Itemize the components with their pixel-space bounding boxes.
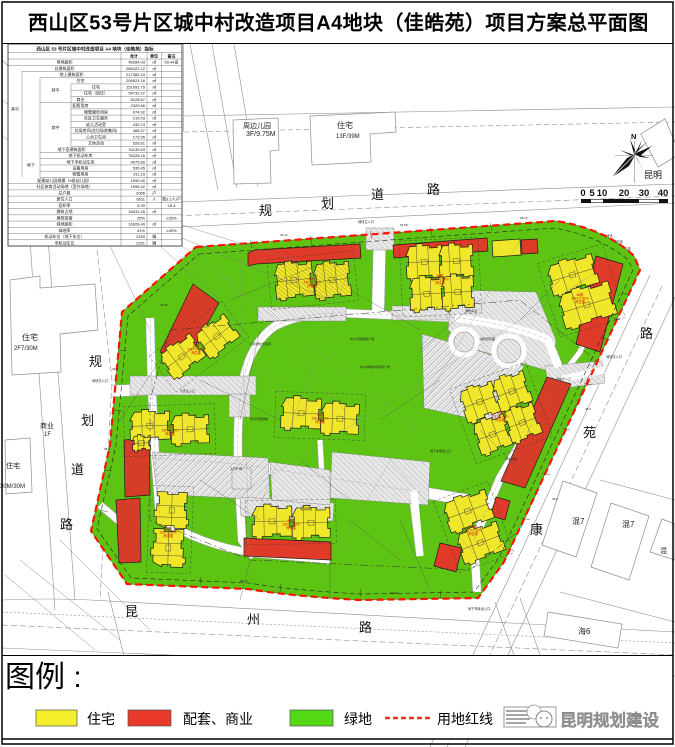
svg-text:0: 0 (580, 188, 585, 199)
svg-text:388.37: 388.37 (133, 128, 146, 133)
svg-text:其中: 其中 (52, 87, 60, 93)
svg-text:地下非机动车库: 地下非机动车库 (67, 158, 95, 164)
svg-text:绿地: 绿地 (344, 711, 372, 727)
svg-text:38.23: 38.23 (520, 216, 528, 220)
svg-text:建筑密度: 建筑密度 (57, 214, 73, 220)
svg-text:昆明: 昆明 (644, 170, 662, 180)
svg-text:2159: 2159 (136, 234, 146, 239)
svg-text:居住人口: 居住人口 (57, 196, 73, 202)
svg-text:24.35: 24.35 (160, 303, 168, 307)
svg-text:住宅: 住宅 (92, 84, 100, 90)
svg-text:商住楼: 商住楼 (191, 350, 201, 355)
svg-text:备注: 备注 (167, 53, 176, 59)
svg-text:公共卫生间: 公共卫生间 (86, 133, 106, 139)
svg-text:绿地率: 绿地率 (59, 227, 71, 233)
svg-text:13F/39M: 13F/39M (336, 134, 360, 140)
svg-text:36.8: 36.8 (552, 497, 558, 501)
svg-text:住宅: 住宅 (6, 461, 20, 470)
svg-text:商住楼: 商住楼 (575, 299, 585, 304)
svg-text:151992.75: 151992.75 (126, 85, 146, 90)
svg-text:辆: 辆 (152, 233, 156, 239)
svg-text:路: 路 (640, 326, 653, 341)
svg-text:地下车库出入口: 地下车库出入口 (430, 448, 451, 453)
svg-text:路: 路 (427, 182, 440, 197)
svg-text:㎡: ㎡ (152, 140, 156, 146)
svg-text:16928.49: 16928.49 (128, 222, 145, 227)
svg-text:地上建筑面积: 地上建筑面积 (60, 71, 84, 77)
svg-text:其中: 其中 (11, 105, 19, 111)
svg-text:住宅: 住宅 (87, 711, 115, 727)
svg-text:住宅: 住宅 (337, 120, 353, 130)
svg-text:㎡: ㎡ (152, 115, 156, 121)
svg-text:㎡: ㎡ (152, 133, 156, 139)
svg-text:8128.67: 8128.67 (131, 97, 146, 102)
svg-text:1996.42: 1996.42 (131, 184, 146, 189)
svg-text:商住楼: 商住楼 (315, 419, 325, 424)
svg-text:西山区 53 号片区城中村改造项目 A4 地块（佳皓苑）指标: 西山区 53 号片区城中村改造项目 A4 地块（佳皓苑）指标 (36, 45, 154, 52)
svg-text:76226.16: 76226.16 (128, 153, 145, 158)
svg-text:用地红线: 用地红线 (437, 711, 493, 727)
svg-text:单位: 单位 (150, 53, 158, 59)
svg-text:路: 路 (60, 517, 73, 532)
svg-text:混7: 混7 (572, 517, 585, 526)
svg-text:配建幼儿园规模（9班幼儿园）: 配建幼儿园规模（9班幼儿园） (37, 177, 91, 183)
svg-text:535.45: 535.45 (133, 166, 146, 171)
svg-text:N: N (631, 132, 636, 141)
svg-text:混7: 混7 (622, 520, 635, 529)
svg-text:容积率: 容积率 (59, 202, 71, 208)
svg-text:消防车道: 消防车道 (465, 308, 477, 313)
svg-text:人: 人 (152, 197, 156, 202)
svg-text:商住楼: 商住楼 (468, 531, 478, 536)
svg-text:㎡: ㎡ (152, 183, 156, 189)
svg-text:机动车位（地下车位）: 机动车位（地下车位） (45, 233, 85, 239)
svg-text:62.35: 62.35 (390, 591, 398, 595)
svg-text:总户数: 总户数 (59, 189, 71, 195)
svg-text:地下机动车库: 地下机动车库 (69, 152, 93, 158)
svg-text:㎡: ㎡ (152, 59, 156, 65)
svg-text:划: 划 (81, 413, 94, 428)
svg-text:≤5.4: ≤5.4 (168, 203, 177, 208)
svg-text:16031.45: 16031.45 (128, 209, 145, 214)
svg-text:㎡: ㎡ (152, 177, 156, 183)
svg-text:63.58: 63.58 (400, 223, 408, 227)
svg-text:设备用房: 设备用房 (73, 165, 89, 171)
svg-text:商住楼: 商住楼 (307, 283, 317, 288)
svg-text:按3.2人/户: 按3.2人/户 (162, 196, 181, 202)
svg-text:商住楼: 商住楼 (163, 533, 173, 538)
svg-text:混: 混 (660, 546, 667, 555)
svg-text:㎡: ㎡ (152, 152, 156, 158)
svg-text:㎡: ㎡ (152, 127, 156, 133)
svg-text:5: 5 (589, 188, 595, 199)
svg-text:商住楼: 商住楼 (495, 417, 505, 422)
svg-text:总建筑面积: 总建筑面积 (55, 65, 75, 71)
svg-text:㎡: ㎡ (152, 65, 156, 71)
svg-text:㎡: ㎡ (152, 77, 156, 83)
svg-text:46284.03: 46284.03 (128, 60, 145, 65)
svg-text:㎡: ㎡ (152, 121, 156, 127)
svg-text:30M/30M: 30M/30M (0, 484, 25, 490)
svg-text:小区绿化景观带: 小区绿化景观带 (250, 341, 271, 346)
svg-text:6611: 6611 (136, 197, 145, 202)
svg-text:商住楼: 商住楼 (286, 525, 296, 530)
svg-text:路: 路 (359, 620, 372, 635)
svg-text:3F/9.75M: 3F/9.75M (246, 131, 276, 138)
svg-text:㎡: ㎡ (152, 171, 156, 177)
svg-text:物管用房: 物管用房 (73, 171, 89, 177)
svg-text:辆: 辆 (152, 239, 156, 245)
svg-text:215.03: 215.03 (133, 116, 146, 121)
svg-text:其中: 其中 (52, 124, 60, 130)
svg-text:中心景观绿地广场: 中心景观绿地广场 (350, 336, 374, 341)
svg-text:地块主入口: 地块主入口 (358, 219, 374, 224)
svg-text:户: 户 (152, 189, 156, 195)
svg-text:10: 10 (597, 188, 608, 199)
svg-text:合计: 合计 (130, 53, 138, 59)
svg-text:住宅（回迁）: 住宅（回迁） (84, 90, 108, 96)
svg-text:52.6: 52.6 (614, 317, 620, 321)
svg-text:㎡: ㎡ (152, 71, 156, 77)
svg-text:规: 规 (259, 203, 272, 218)
svg-text:45.12: 45.12 (280, 233, 288, 237)
svg-text:垃圾房间(含垃圾收集间): 垃圾房间(含垃圾收集间) (75, 127, 118, 133)
svg-text:文体活动: 文体活动 (88, 140, 104, 146)
svg-text:人行广场: 人行广场 (230, 466, 242, 471)
svg-text:图例 :: 图例 : (5, 661, 82, 694)
svg-text:20: 20 (619, 188, 630, 199)
svg-text:幼儿活动室: 幼儿活动室 (86, 121, 106, 127)
svg-text:2329.66: 2329.66 (131, 103, 146, 108)
svg-text:地块次入口: 地块次入口 (556, 376, 571, 381)
svg-text:206624.16: 206624.16 (126, 78, 146, 83)
svg-text:311.23: 311.23 (133, 172, 146, 177)
svg-text:划: 划 (321, 196, 334, 211)
svg-text:25%: 25% (137, 215, 145, 220)
svg-text:中心绿地休闲活动广场: 中心绿地休闲活动广场 (360, 364, 390, 369)
svg-text:建筑占地: 建筑占地 (57, 208, 73, 214)
svg-text:2251: 2251 (136, 240, 146, 245)
svg-text:㎡: ㎡ (152, 90, 156, 96)
svg-text:州: 州 (247, 612, 260, 627)
svg-text:宅间绿地: 宅间绿地 (300, 506, 312, 511)
svg-text:道: 道 (71, 462, 84, 477)
svg-text:㎡: ㎡ (152, 221, 156, 227)
svg-text:㎡: ㎡ (152, 102, 156, 108)
svg-text:绿地面积: 绿地面积 (57, 221, 73, 227)
svg-text:2066: 2066 (136, 190, 146, 195)
svg-text:西山区53号片区城中村改造项目A4地块（佳皓苑）项目方案总平: 西山区53号片区城中村改造项目A4地块（佳皓苑）项目方案总平面图 (28, 11, 649, 35)
svg-text:㎡: ㎡ (152, 158, 156, 164)
svg-text:地下: 地下 (27, 161, 35, 167)
svg-text:配套、商业: 配套、商业 (183, 711, 253, 727)
svg-text:商业: 商业 (77, 96, 85, 102)
svg-text:地下室建筑面积: 地下室建筑面积 (58, 146, 86, 152)
svg-text:康: 康 (530, 522, 543, 537)
svg-text:㎡: ㎡ (152, 146, 156, 152)
svg-text:≤25%: ≤25% (166, 215, 177, 220)
svg-text:㎡: ㎡ (152, 165, 156, 171)
svg-text:周边儿园: 周边儿园 (243, 121, 271, 130)
svg-text:286322.12: 286322.12 (126, 66, 146, 71)
svg-text:217382.24: 217382.24 (126, 72, 146, 77)
svg-text:≥40%: ≥40% (166, 228, 177, 233)
svg-text:社区体育活动场地（室外场地）: 社区体育活动场地（室外场地） (37, 183, 93, 189)
svg-text:㎡: ㎡ (152, 208, 156, 214)
svg-text:地块次入口: 地块次入口 (606, 354, 622, 359)
svg-text:商业: 商业 (40, 421, 54, 430)
svg-text:非机动车位: 非机动车位 (55, 239, 75, 245)
svg-text:42.6: 42.6 (112, 367, 118, 371)
svg-text:㎡: ㎡ (152, 108, 156, 114)
svg-text:55.74: 55.74 (240, 579, 248, 583)
svg-text:528.61: 528.61 (133, 141, 146, 146)
svg-text:54732.27: 54732.27 (128, 91, 145, 96)
svg-text:社区卫生服务: 社区卫生服务 (84, 115, 108, 121)
svg-text:商住楼: 商住楼 (165, 431, 175, 436)
svg-text:41%: 41% (137, 228, 145, 233)
svg-text:1F: 1F (44, 432, 51, 438)
svg-text:规: 规 (89, 354, 102, 369)
svg-text:2F7/30M: 2F7/30M (14, 346, 38, 352)
svg-text:地下车库出入口: 地下车库出入口 (468, 606, 490, 611)
svg-text:38.4: 38.4 (104, 447, 110, 451)
svg-text:宅间景观绿地: 宅间景观绿地 (250, 416, 268, 421)
svg-text:苑: 苑 (583, 425, 596, 440)
svg-text:674.92: 674.92 (133, 109, 146, 114)
svg-text:48.2: 48.2 (585, 407, 591, 411)
svg-text:430.74: 430.74 (133, 122, 146, 127)
svg-text:住宅: 住宅 (77, 77, 85, 83)
svg-text:道: 道 (371, 187, 384, 202)
svg-text:91139.63: 91139.63 (129, 147, 146, 152)
svg-text:配套用房: 配套用房 (73, 102, 89, 108)
svg-text:69.44亩: 69.44亩 (164, 59, 178, 65)
svg-text:5.39: 5.39 (137, 203, 146, 208)
svg-text:昆明规划建设: 昆明规划建设 (560, 710, 660, 730)
svg-text:173.95: 173.95 (133, 134, 146, 139)
svg-text:30: 30 (639, 188, 650, 199)
svg-text:㎡: ㎡ (152, 96, 156, 102)
svg-text:商业内街: 商业内街 (505, 456, 517, 461)
svg-text:商住楼: 商住楼 (435, 280, 445, 285)
svg-text:昆: 昆 (125, 604, 138, 619)
svg-text:4075.80: 4075.80 (131, 159, 146, 164)
svg-text:㎡: ㎡ (152, 84, 156, 90)
svg-text:40: 40 (658, 188, 669, 199)
svg-text:用地面积: 用地面积 (57, 59, 73, 65)
svg-text:海6: 海6 (578, 626, 591, 636)
svg-text:1990.40: 1990.40 (131, 178, 146, 183)
svg-text:物管服务用房: 物管服务用房 (84, 108, 108, 114)
svg-text:小区主入口: 小区主入口 (180, 388, 195, 393)
svg-text:住宅: 住宅 (22, 332, 38, 342)
svg-text:地块次入口: 地块次入口 (92, 378, 108, 383)
